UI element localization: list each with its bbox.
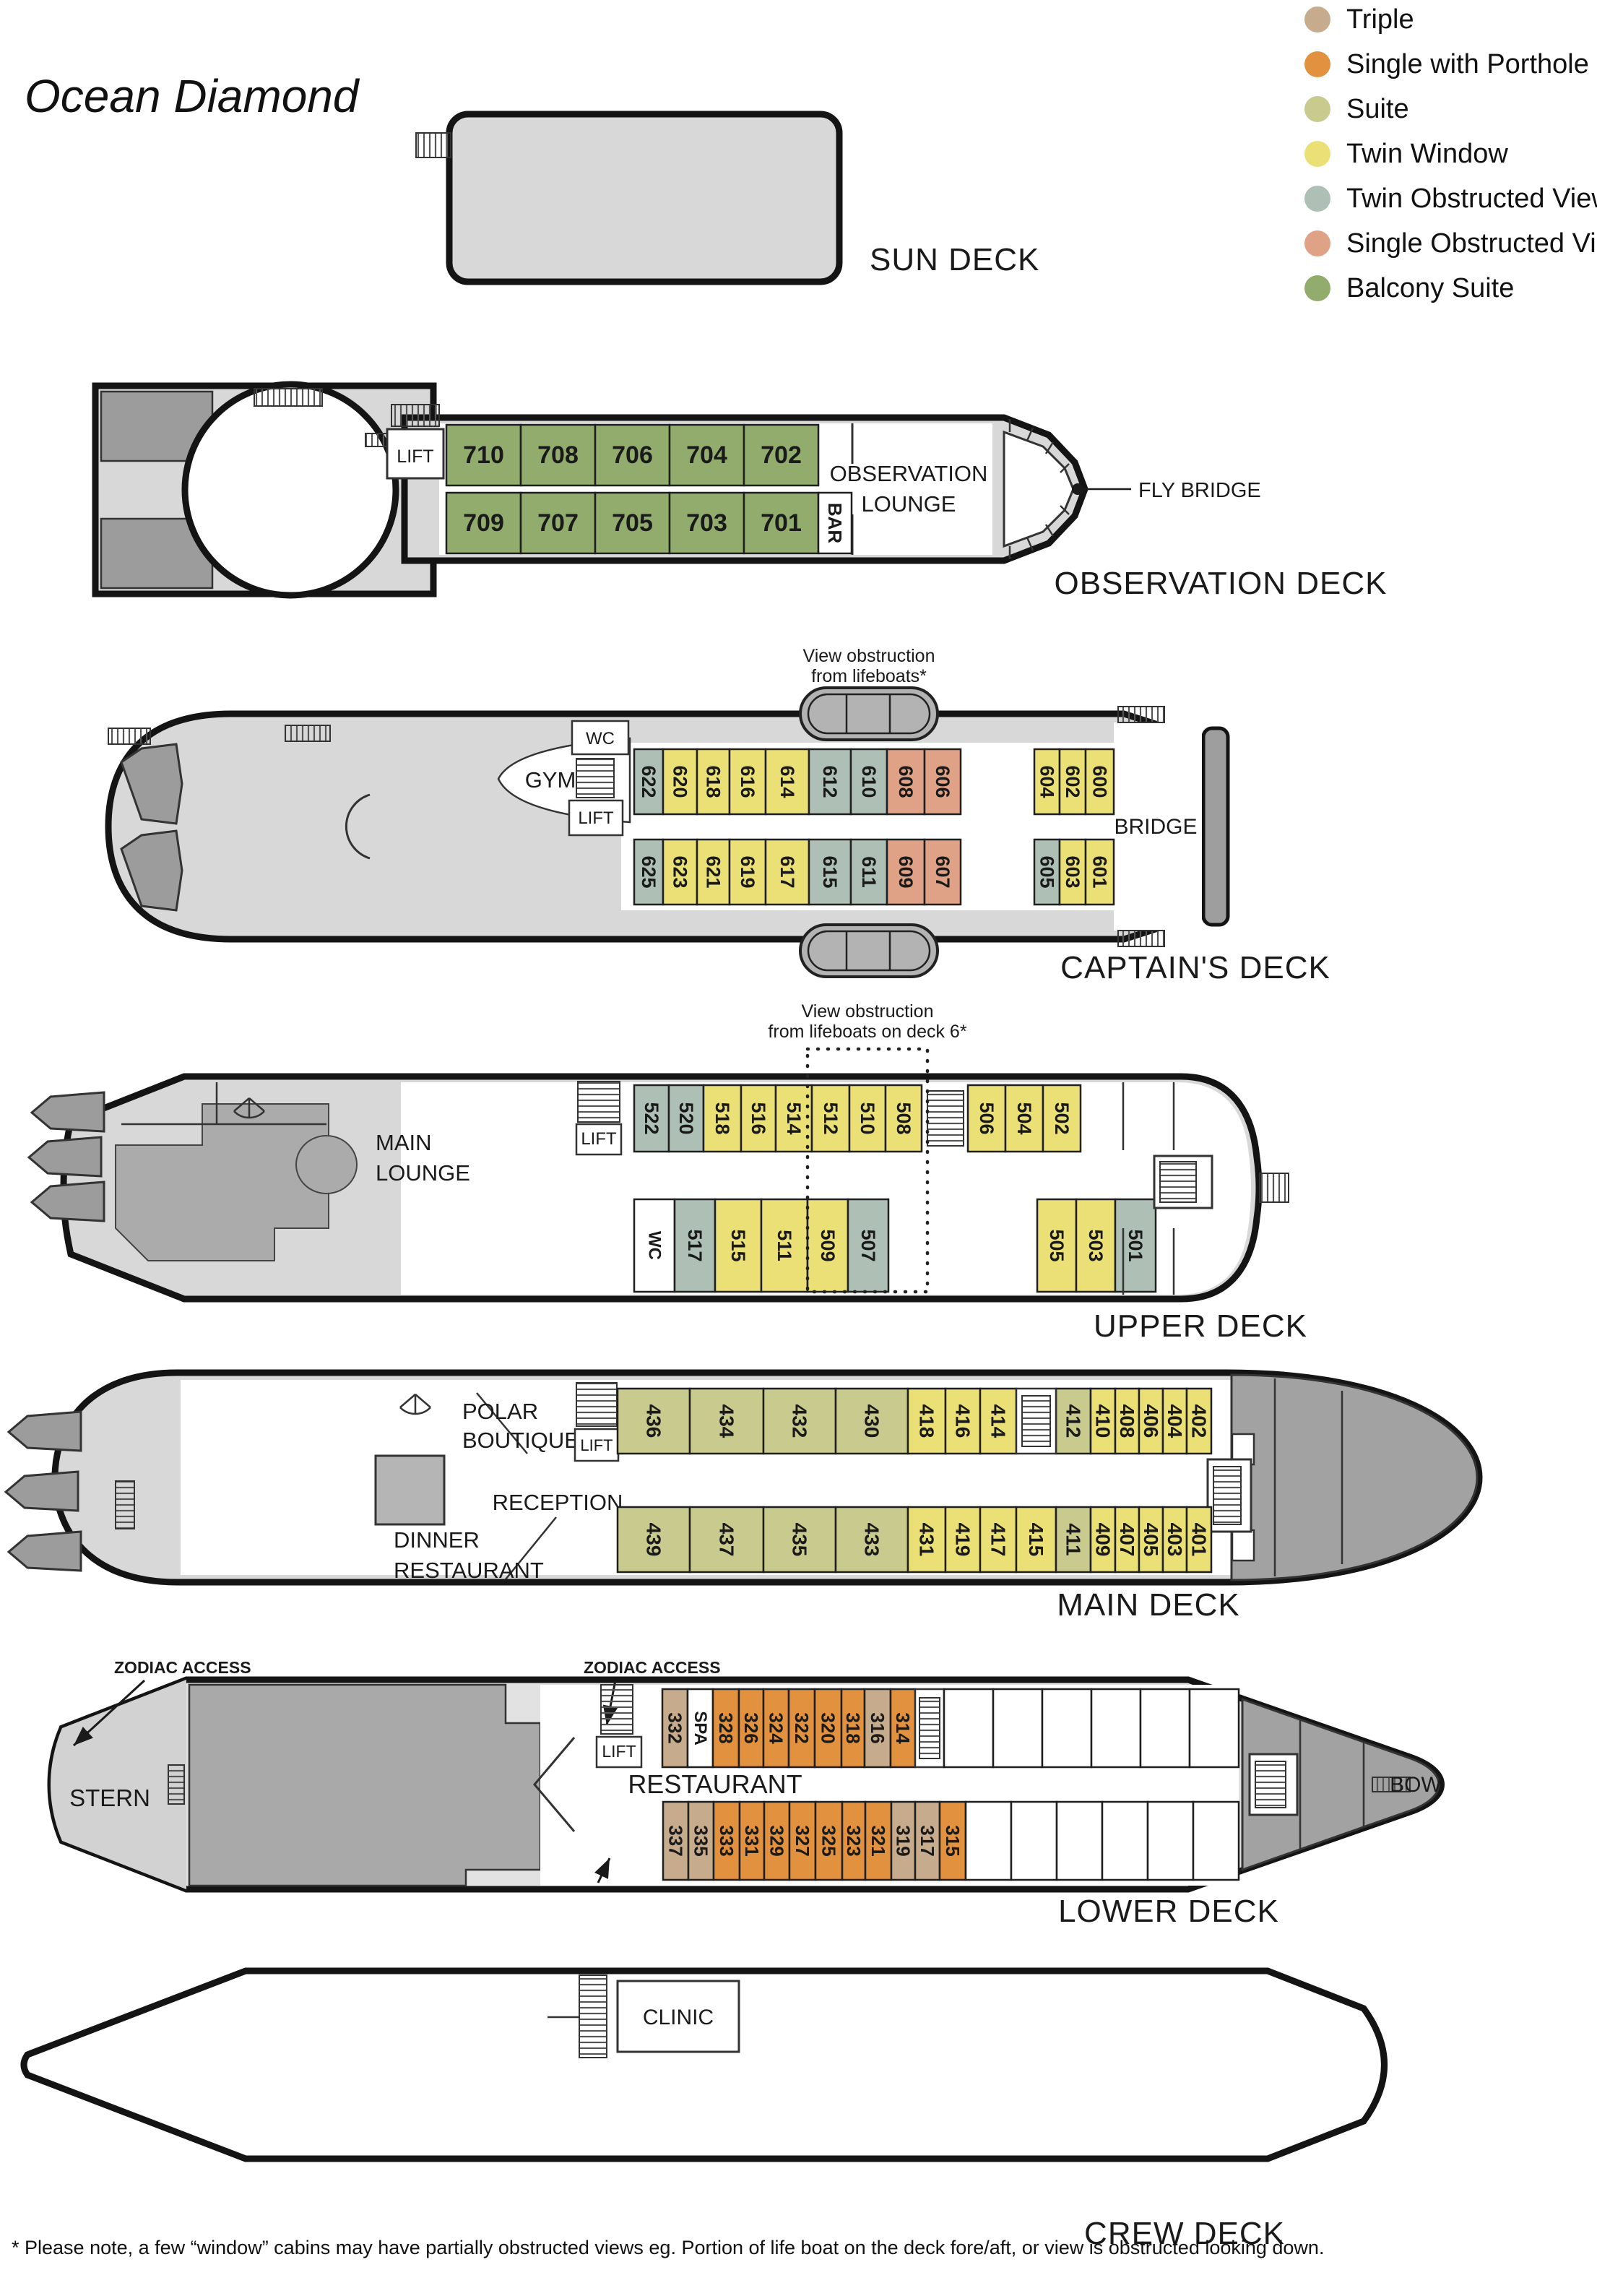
cabin-label-415: 415 — [1025, 1523, 1047, 1557]
deck-plan-page: Ocean Diamond TripleSingle with Porthole… — [0, 0, 1597, 2296]
cabin-label-407: 407 — [1116, 1523, 1138, 1557]
cabin-label-703: 703 — [686, 509, 727, 537]
cabin-label-332: 332 — [665, 1712, 686, 1743]
observation-deck: LIFT 710708706704702 709707705703701BAR … — [95, 384, 1387, 601]
reception-label: RECEPTION — [493, 1490, 623, 1515]
cabin-label-324: 324 — [766, 1712, 787, 1744]
cabin-label-622: 622 — [638, 765, 659, 798]
crew-cabin — [1011, 1802, 1057, 1880]
cabin-label-319: 319 — [893, 1825, 914, 1856]
crew-cabin — [1141, 1689, 1190, 1767]
crew-cabin — [1193, 1802, 1239, 1880]
upper-deck-label: UPPER DECK — [1094, 1308, 1307, 1344]
cabin-label-416: 416 — [952, 1404, 974, 1438]
cabin-label-402: 402 — [1188, 1404, 1211, 1438]
cabin-label-604: 604 — [1036, 765, 1058, 798]
main-cabins-bottom: 4394374354334314194174154114094074054034… — [618, 1507, 1211, 1572]
captains-note-2: from lifeboats* — [811, 666, 927, 686]
bridge-wing — [1203, 728, 1228, 925]
restaurant-label: RESTAURANT — [628, 1769, 802, 1799]
stairs-icon — [1160, 1162, 1196, 1202]
cabin-label-437: 437 — [716, 1523, 738, 1557]
captains-deck: View obstruction from lifeboats* GYM WC … — [108, 646, 1330, 985]
lift-label: LIFT — [397, 446, 433, 467]
cabin-label-603: 603 — [1062, 855, 1083, 888]
stairs-icon — [919, 1698, 940, 1758]
cabin-label-621: 621 — [703, 855, 724, 888]
upper-structure-oval — [296, 1136, 357, 1194]
observation-cabins-top: 710708706704702 — [446, 425, 818, 485]
cabin-label-329: 329 — [766, 1825, 788, 1856]
cabin-label-707: 707 — [537, 509, 579, 537]
clinic-label: CLINIC — [643, 2006, 714, 2029]
cabin-label-328: 328 — [715, 1712, 737, 1743]
sun-deck-hull — [449, 114, 839, 282]
crew-cabin — [944, 1689, 993, 1767]
crew-cabin — [1190, 1689, 1239, 1767]
cabin-label-506: 506 — [976, 1102, 997, 1134]
cabin-label-617: 617 — [776, 855, 798, 888]
cabin-label-508: 508 — [893, 1102, 914, 1134]
cabin-label-605: 605 — [1036, 855, 1058, 888]
cabin-label-401: 401 — [1188, 1523, 1211, 1557]
observation-cabins-bottom: 709707705703701BAR — [446, 493, 852, 553]
polar-boutique-label-1: POLAR — [462, 1399, 538, 1424]
cabin-label-601: 601 — [1089, 855, 1111, 888]
cabin-label-623: 623 — [670, 855, 691, 888]
ladder-icon — [1118, 707, 1164, 722]
cabin-label-503: 503 — [1085, 1229, 1107, 1261]
cabin-label-327: 327 — [792, 1825, 813, 1856]
zodiac-boat — [32, 1092, 104, 1131]
ladder-icon — [116, 1481, 134, 1529]
observation-lounge-label-1: OBSERVATION — [830, 461, 988, 486]
cabin-label-435: 435 — [789, 1523, 811, 1557]
zodiac-access-label-mid: ZODIAC ACCESS — [584, 1658, 721, 1677]
cabin-label-432: 432 — [789, 1404, 811, 1438]
cabin-label-510: 510 — [857, 1102, 878, 1134]
cabin-label-320: 320 — [818, 1712, 839, 1743]
cabin-label-414: 414 — [987, 1404, 1010, 1438]
cabin-label-325: 325 — [818, 1825, 840, 1856]
cabin-label-509: 509 — [817, 1229, 839, 1261]
lower-cabins-top: 332SPA328326324322320318316314 — [662, 1689, 915, 1767]
cabin-label-610: 610 — [858, 765, 880, 798]
lift-label: LIFT — [581, 1129, 617, 1149]
lift-label: LIFT — [578, 808, 614, 828]
ladder-icon — [168, 1765, 184, 1804]
cabin-label-505: 505 — [1046, 1229, 1068, 1261]
lift-label: LIFT — [602, 1742, 636, 1761]
cabin-label-BAR: BAR — [824, 503, 846, 544]
ladder-icon — [254, 389, 322, 406]
cabin-label-331: 331 — [741, 1825, 763, 1856]
cabin-label-600: 600 — [1089, 765, 1111, 798]
footnote: * Please note, a few “window” cabins may… — [12, 2237, 1586, 2259]
captains-note-1: View obstruction — [803, 646, 935, 666]
stairs-icon — [1213, 1467, 1241, 1524]
cabin-label-520: 520 — [675, 1102, 697, 1134]
cabin-label-317: 317 — [917, 1825, 938, 1856]
main-lounge-label-1: MAIN — [376, 1130, 432, 1155]
cabin-label-323: 323 — [843, 1825, 865, 1856]
lift-label: LIFT — [580, 1436, 613, 1454]
cabin-label-514: 514 — [783, 1102, 805, 1134]
cabin-label-411: 411 — [1062, 1523, 1085, 1555]
cabin-label-602: 602 — [1062, 765, 1083, 798]
cabin-label-611: 611 — [858, 856, 880, 888]
cabin-label-434: 434 — [716, 1404, 738, 1438]
captains-cabins-top: 622620618616614612610608606604602600 — [634, 749, 1114, 814]
zodiac-boat — [29, 1137, 101, 1176]
cabin-label-316: 316 — [867, 1712, 888, 1743]
cabin-label-620: 620 — [670, 765, 691, 798]
sun-deck-label: SUN DECK — [870, 242, 1039, 277]
cabin-label-612: 612 — [819, 765, 841, 798]
gangway-hatch — [1260, 1173, 1289, 1202]
cabin-label-318: 318 — [842, 1712, 864, 1743]
zodiac-boat — [6, 1472, 78, 1511]
stairs-icon — [576, 1383, 617, 1426]
crew-cabin — [1057, 1802, 1102, 1880]
cabin-label-335: 335 — [691, 1825, 712, 1856]
cabin-label-501: 501 — [1125, 1229, 1146, 1261]
bridge-label: BRIDGE — [1114, 815, 1197, 839]
lower-deck-label: LOWER DECK — [1058, 1894, 1279, 1929]
captains-deck-label: CAPTAIN'S DECK — [1060, 950, 1330, 985]
main-lounge-label-2: LOUNGE — [376, 1160, 470, 1186]
gym-label: GYM — [525, 767, 576, 793]
cabin-label-418: 418 — [916, 1404, 938, 1438]
cabin-label-337: 337 — [665, 1825, 687, 1856]
crew-cabin — [1091, 1689, 1141, 1767]
polar-boutique-label-2: BOUTIQUE — [462, 1428, 579, 1453]
cabin-label-326: 326 — [740, 1712, 762, 1743]
ladder-icon — [1118, 931, 1164, 946]
lifeboat — [800, 925, 938, 977]
ladder-icon — [108, 728, 150, 744]
stairs-icon — [391, 405, 439, 426]
zodiac-boat — [32, 1182, 104, 1221]
observation-lounge-label-2: LOUNGE — [862, 491, 956, 517]
fly-bridge-label: FLY BRIDGE — [1138, 479, 1261, 502]
lower-deck: BOW STERN ZODIAC ACCESS ZODIAC ACCESS RE… — [51, 1658, 1442, 1929]
cabin-label-706: 706 — [612, 441, 653, 469]
upper-cabins-top: 522520518516514512510508506504502 — [634, 1085, 1081, 1152]
crew-deck: CLINIC CREW DECK — [24, 1971, 1385, 2251]
zodiac-boat — [9, 1412, 81, 1451]
cabin-label-517: 517 — [684, 1229, 706, 1261]
crew-cabin — [966, 1802, 1011, 1880]
cabin-label-704: 704 — [686, 441, 727, 469]
stairs-icon — [601, 1685, 633, 1734]
cabin-label-431: 431 — [916, 1523, 938, 1557]
observation-cutout — [185, 384, 396, 595]
cabin-label-709: 709 — [463, 509, 504, 537]
cabin-label-522: 522 — [641, 1102, 662, 1134]
cabin-label-504: 504 — [1013, 1102, 1035, 1134]
cabin-label-708: 708 — [537, 441, 579, 469]
crew-cabin — [1042, 1689, 1091, 1767]
upper-deck: View obstruction from lifeboats on deck … — [29, 1001, 1307, 1344]
cabin-label-608: 608 — [895, 765, 917, 798]
cabin-label-516: 516 — [748, 1102, 769, 1134]
cabin-label-616: 616 — [737, 765, 758, 798]
ladder-icon — [285, 725, 330, 741]
cabin-label-SPA: SPA — [691, 1711, 710, 1745]
cabin-label-412: 412 — [1062, 1404, 1085, 1438]
observation-deck-label: OBSERVATION DECK — [1055, 566, 1388, 601]
funnel-casing — [376, 1456, 444, 1524]
cabin-label-419: 419 — [952, 1523, 974, 1557]
crew-cabin — [1102, 1802, 1148, 1880]
cabin-label-406: 406 — [1140, 1404, 1162, 1438]
machinery-area — [189, 1685, 540, 1886]
cabin-label-607: 607 — [932, 855, 953, 888]
upper-note-1: View obstruction — [802, 1001, 934, 1022]
cabin-label-430: 430 — [861, 1404, 883, 1438]
captains-cabins-bottom: 625623621619617615611609607605603601 — [634, 840, 1114, 905]
cabin-label-512: 512 — [820, 1102, 841, 1134]
cabin-label-502: 502 — [1051, 1102, 1073, 1134]
stairs-icon — [578, 1082, 620, 1122]
cabin-label-405: 405 — [1140, 1523, 1162, 1557]
main-deck-label: MAIN DECK — [1057, 1587, 1239, 1623]
cabin-label-439: 439 — [643, 1523, 665, 1557]
dinner-restaurant-label-1: DINNER — [394, 1527, 480, 1553]
cabin-label-WC: WC — [645, 1231, 665, 1260]
zodiac-access-label-stern: ZODIAC ACCESS — [114, 1658, 251, 1677]
crew-cabin — [1148, 1802, 1193, 1880]
stairs-icon — [1022, 1396, 1050, 1446]
cabin-label-314: 314 — [892, 1712, 914, 1744]
cabin-label-710: 710 — [463, 441, 504, 469]
upper-note-2: from lifeboats on deck 6* — [768, 1022, 966, 1042]
stairs-icon — [576, 759, 614, 798]
cabin-label-614: 614 — [776, 765, 798, 798]
main-deck: POLAR BOUTIQUE RECEPTION DINNER RESTAURA… — [6, 1373, 1479, 1623]
deck-plan-canvas: SUN DECK LIFT 71070870 — [0, 0, 1597, 2296]
cabin-label-702: 702 — [761, 441, 802, 469]
cabin-label-625: 625 — [638, 855, 659, 888]
cabin-label-315: 315 — [942, 1825, 964, 1856]
wc-label: WC — [586, 729, 615, 748]
cabin-label-322: 322 — [791, 1712, 813, 1743]
bow-label: BOW — [1390, 1773, 1442, 1797]
ladder-icon — [416, 133, 451, 157]
fly-bridge-pointer-dot — [1072, 483, 1083, 495]
cabin-label-511: 511 — [774, 1230, 795, 1261]
cabin-label-410: 410 — [1092, 1404, 1115, 1438]
cabin-label-606: 606 — [932, 765, 953, 798]
cabin-label-436: 436 — [643, 1404, 665, 1438]
cabin-label-333: 333 — [716, 1825, 737, 1856]
cabin-label-404: 404 — [1164, 1404, 1186, 1438]
sun-deck: SUN DECK — [416, 114, 1039, 282]
cabin-label-408: 408 — [1116, 1404, 1138, 1438]
cabin-label-619: 619 — [737, 855, 758, 888]
crew-cabin — [993, 1689, 1042, 1767]
main-cabins-top: 436434432430418416414412410408406404402 — [618, 1389, 1211, 1454]
cabin-label-615: 615 — [819, 855, 841, 888]
stairs-icon — [927, 1091, 964, 1146]
main-bow — [1232, 1375, 1477, 1580]
bow-room — [1232, 1530, 1254, 1561]
cabin-label-417: 417 — [987, 1523, 1010, 1557]
cabin-label-618: 618 — [703, 765, 724, 798]
cabin-label-515: 515 — [727, 1229, 749, 1261]
lifeboat — [800, 688, 938, 740]
cabin-label-518: 518 — [711, 1102, 733, 1134]
zodiac-boat — [9, 1532, 81, 1571]
cabin-label-705: 705 — [612, 509, 653, 537]
cabin-label-433: 433 — [861, 1523, 883, 1557]
cabin-label-701: 701 — [761, 509, 802, 537]
cabin-label-507: 507 — [857, 1229, 879, 1261]
stairs-icon — [579, 1975, 607, 2058]
stern-label: STERN — [69, 1784, 150, 1811]
stairs-icon — [1255, 1761, 1286, 1808]
dinner-restaurant-label-2: RESTAURANT — [394, 1558, 544, 1583]
cabin-label-321: 321 — [867, 1825, 889, 1856]
cabin-label-403: 403 — [1164, 1523, 1186, 1557]
cabin-label-609: 609 — [895, 855, 917, 888]
cabin-label-409: 409 — [1092, 1523, 1115, 1557]
lower-cabins-bottom: 337335333331329327325323321319317315 — [663, 1802, 966, 1880]
